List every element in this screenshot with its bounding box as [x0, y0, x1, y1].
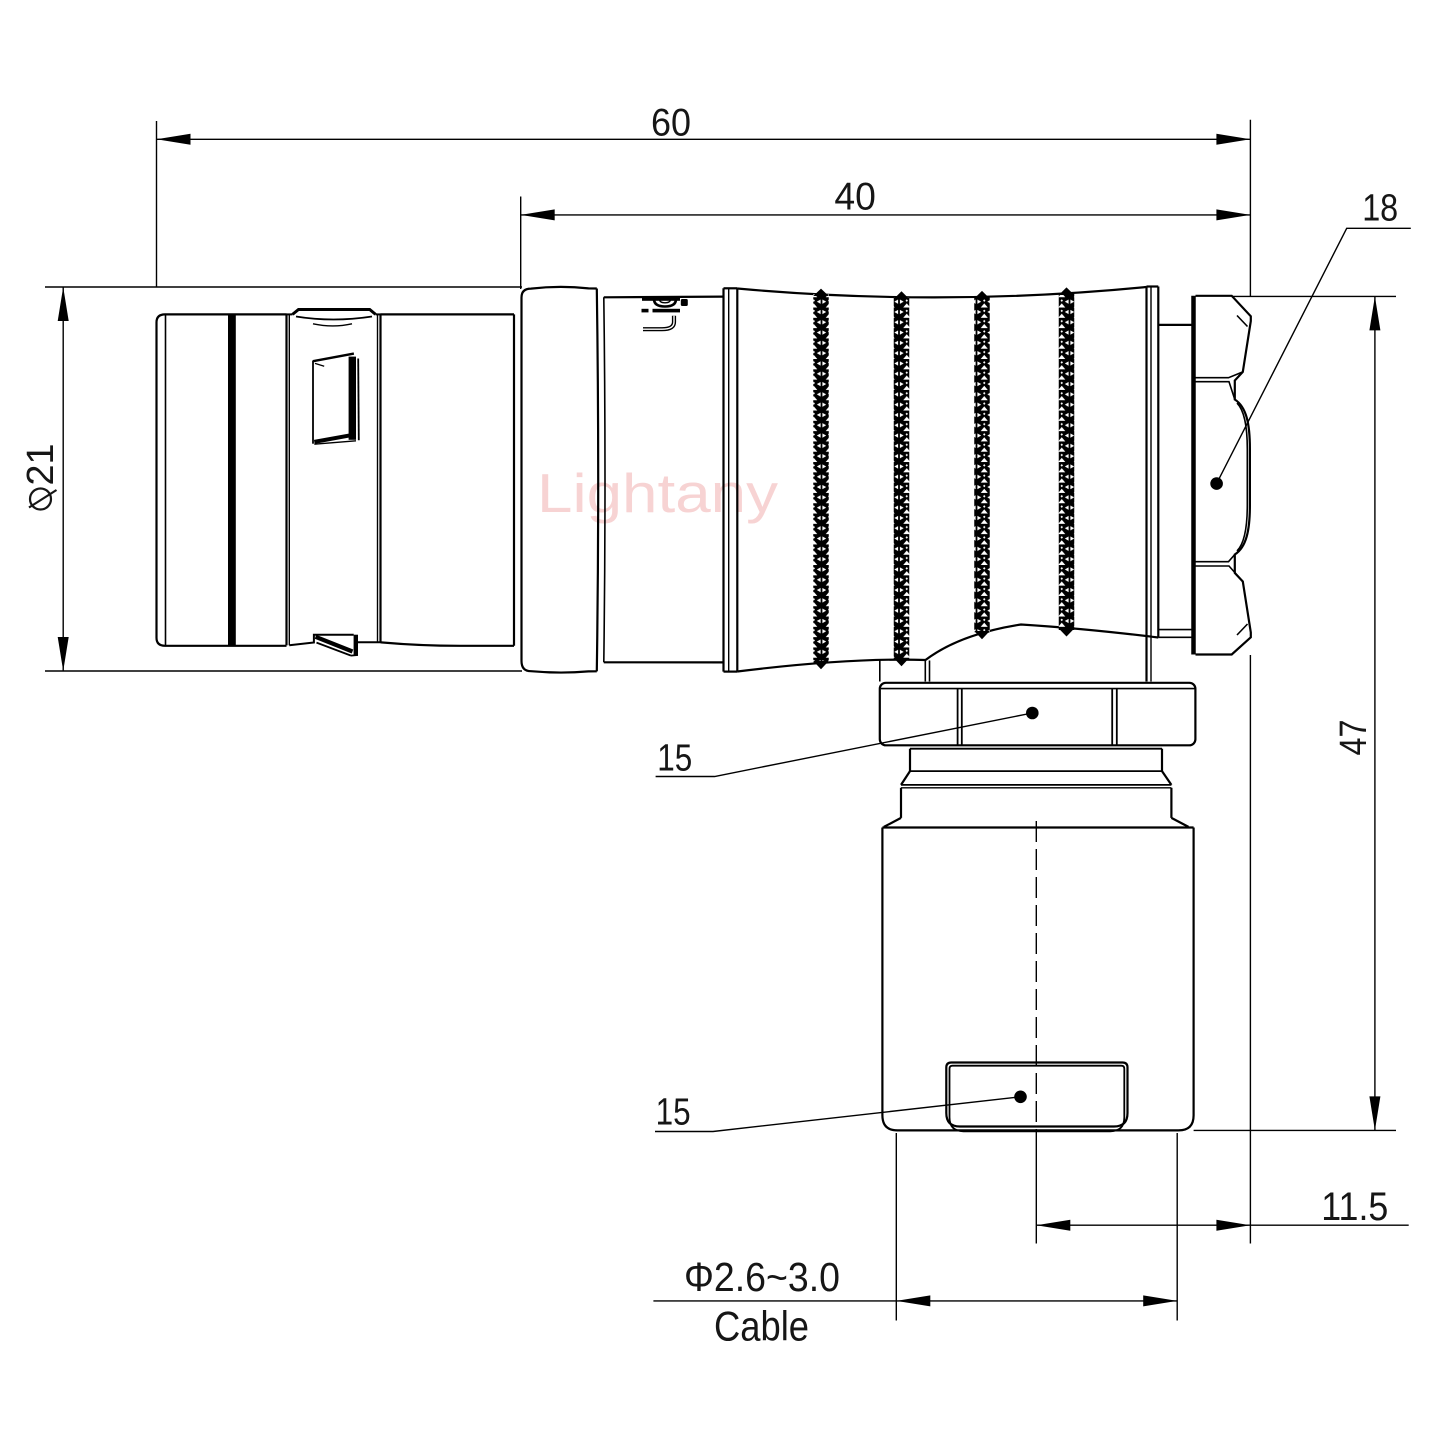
svg-text:11.5: 11.5: [1321, 1185, 1388, 1229]
svg-text:15: 15: [657, 737, 692, 779]
svg-text:60: 60: [651, 102, 691, 145]
svg-text:47: 47: [1333, 720, 1375, 756]
svg-text:Φ2.6~3.0: Φ2.6~3.0: [684, 1254, 840, 1300]
svg-text:40: 40: [834, 176, 876, 219]
svg-text:18: 18: [1362, 188, 1398, 230]
svg-text:Cable: Cable: [714, 1303, 809, 1350]
svg-text:15: 15: [656, 1092, 691, 1134]
svg-text:Lightany: Lightany: [537, 462, 779, 524]
svg-text:21: 21: [20, 444, 62, 486]
